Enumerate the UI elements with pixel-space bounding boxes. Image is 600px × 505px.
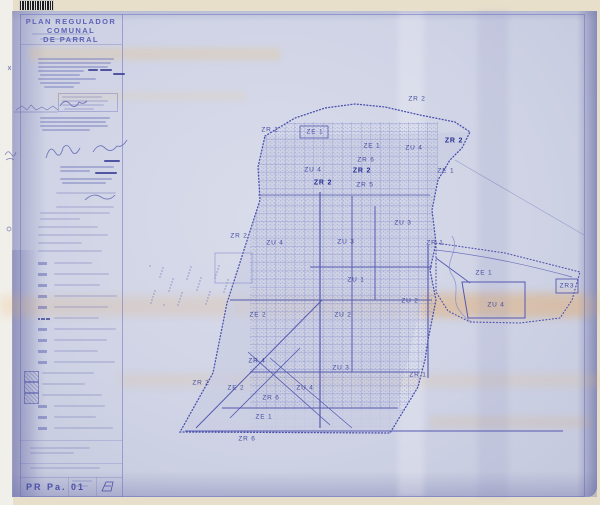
zone-label: ZE 1 <box>307 129 324 136</box>
zone-label: ZE 1 <box>476 270 493 277</box>
zone-label: ZR 6 <box>262 395 279 402</box>
zone-label: ZU 2 <box>334 312 351 319</box>
zone-label: ZU 4 <box>296 385 313 392</box>
legend-swatch <box>24 371 39 382</box>
plan-title: PLAN REGULADOR COMUNAL DE PARRAL <box>24 17 118 44</box>
zone-label: ZR 2 <box>192 380 209 387</box>
legend-symbol <box>38 427 47 430</box>
zone-label: ZU 3 <box>337 239 354 246</box>
scanned-plan-sheet: PLAN REGULADOR COMUNAL DE PARRAL PR Pa. … <box>0 0 600 505</box>
scan-left-margin <box>0 0 13 505</box>
legend-symbol <box>38 295 47 298</box>
legend-symbol <box>38 339 47 342</box>
zone-label: ZR 6 <box>238 436 255 443</box>
zone-label: ZR 1 <box>409 372 426 379</box>
sheet-code: PR Pa. 01 <box>26 482 85 492</box>
legend-symbol <box>38 262 47 265</box>
zone-label: ZR 2 <box>261 127 278 134</box>
zone-label: ZU 4 <box>266 240 283 247</box>
legend-swatch <box>24 393 39 404</box>
zone-label: ZU 1 <box>347 277 364 284</box>
zone-label: ZR 2 <box>408 96 425 103</box>
zone-label: ZU 3 <box>332 365 349 372</box>
zone-label: ZR 2 <box>445 138 463 145</box>
zone-label: ZU 4 <box>405 145 422 152</box>
legend-swatch <box>24 382 39 393</box>
zone-label: ZR 2 <box>230 233 247 240</box>
zone-label: ZE 1 <box>438 168 455 175</box>
zone-label: ZR 2 <box>353 168 371 175</box>
zone-label: ZU 4 <box>304 167 321 174</box>
zone-label: ZE 2 <box>228 385 245 392</box>
legend-symbol <box>38 328 47 331</box>
zone-label: ZU 4 <box>487 302 504 309</box>
legend-symbol <box>38 273 47 276</box>
legend-symbol <box>38 284 47 287</box>
zone-label: ZU 3 <box>394 220 411 227</box>
zone-label: ZU 2 <box>401 298 418 305</box>
legend-symbol <box>38 416 47 419</box>
zone-label: ZR 1 <box>426 240 443 247</box>
plan-title-line2: DE PARRAL <box>24 35 118 44</box>
zone-label: ZR 5 <box>356 182 373 189</box>
blueprint-paper <box>12 11 597 497</box>
approval-stamp-box <box>58 93 118 112</box>
legend-dotted-symbol <box>38 318 40 320</box>
zone-label: ZE 1 <box>256 414 273 421</box>
legend-symbol <box>38 306 47 309</box>
plan-title-line1: PLAN REGULADOR COMUNAL <box>24 17 118 35</box>
zone-label: ZE 1 <box>364 143 381 150</box>
zone-label: ZR 6 <box>357 157 374 164</box>
barcode-sticker <box>20 1 53 10</box>
zone-label: ZR 2 <box>314 180 332 187</box>
zone-label: ZR3 <box>560 283 575 290</box>
zone-label: ZE 2 <box>250 312 267 319</box>
zone-label: ZR 4 <box>248 358 265 365</box>
legend-symbol <box>38 350 47 353</box>
legend-symbol <box>38 405 47 408</box>
legend-symbol <box>38 361 47 364</box>
